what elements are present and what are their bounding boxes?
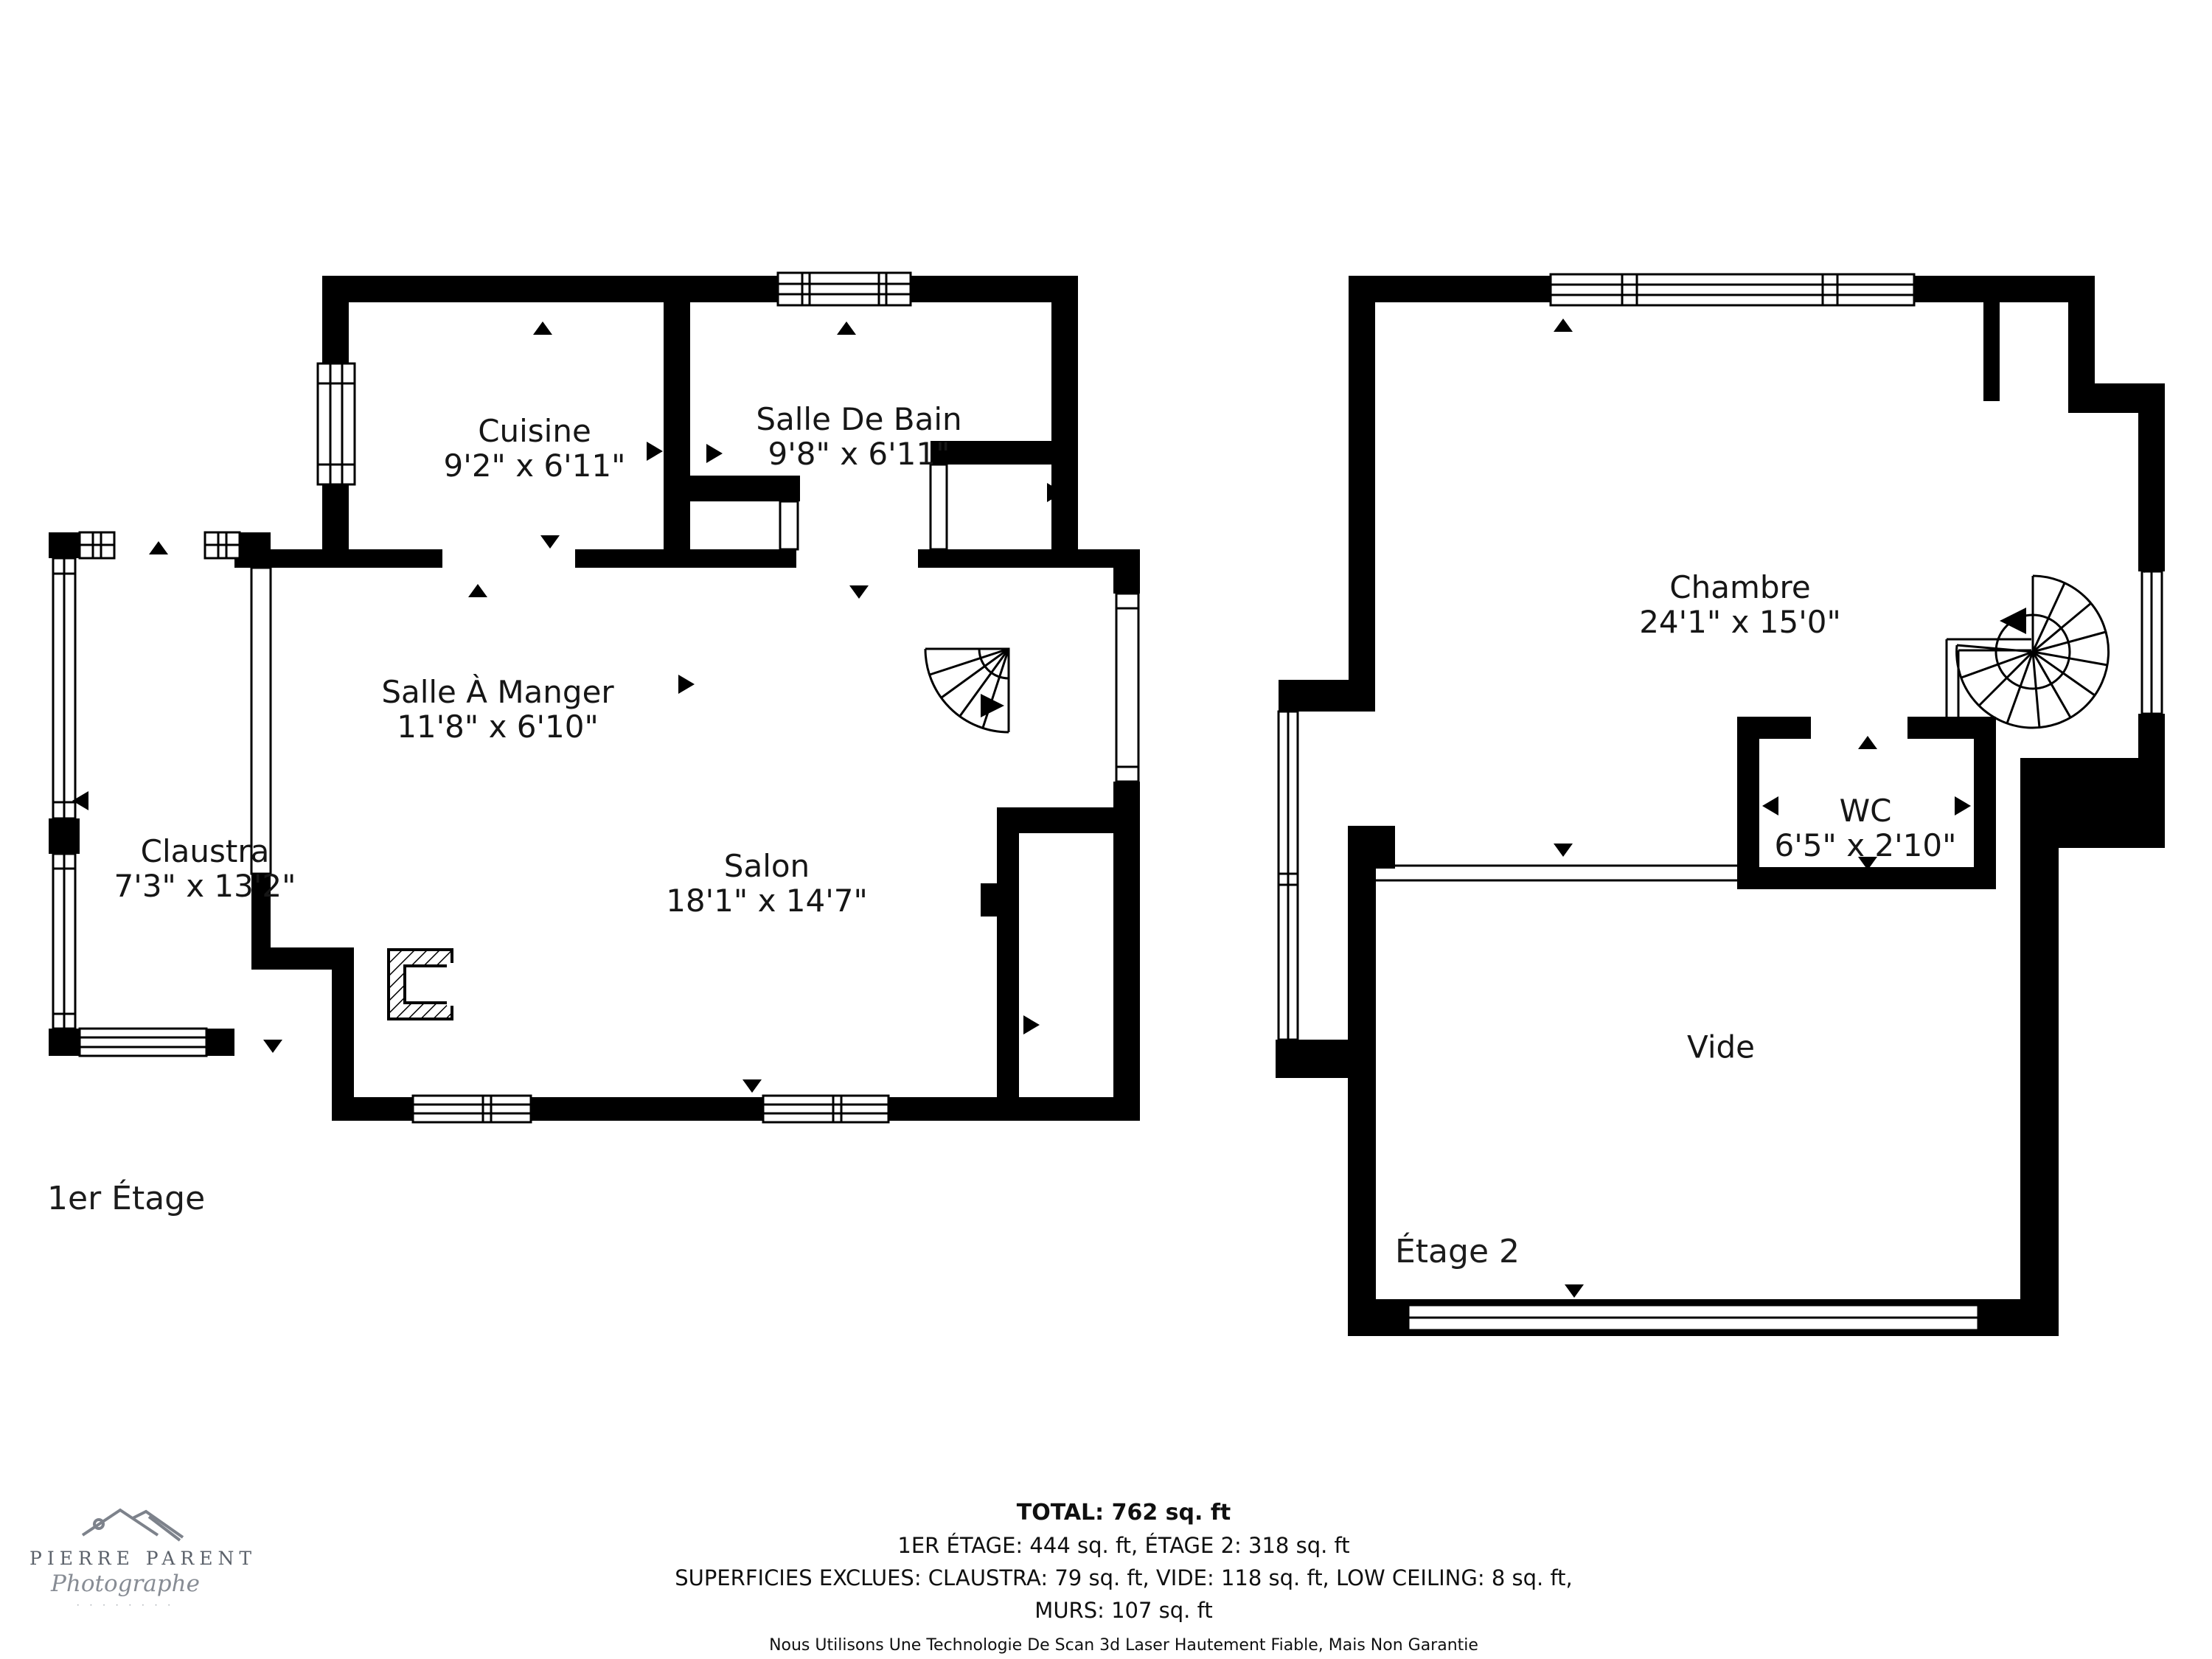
room-label-claustra: Claustra 7'3" x 13'2" — [114, 834, 296, 903]
floor1-label: 1er Étage — [47, 1180, 205, 1217]
logo-subtitle: Photographe — [29, 1571, 221, 1597]
room-name: Claustra — [114, 834, 296, 869]
room-label-salle-de-bain: Salle De Bain 9'8" x 6'11" — [756, 402, 961, 471]
room-dims: 6'5" x 2'10" — [1775, 828, 1957, 863]
photographer-logo: PIERRE PARENT Photographe · · · · · · · … — [29, 1500, 221, 1610]
summary-walls: MURS: 107 sq. ft — [18, 1594, 2212, 1627]
room-name: Cuisine — [444, 414, 626, 448]
room-name: Chambre — [1639, 570, 1841, 605]
floor2-label: Étage 2 — [1395, 1233, 1520, 1270]
room-name: Salle À Manger — [381, 675, 613, 709]
room-dims: 9'8" x 6'11" — [756, 437, 961, 471]
room-dims: 24'1" x 15'0" — [1639, 605, 1841, 639]
room-label-vide: Vide — [1687, 1030, 1755, 1065]
room-dims: 9'2" x 6'11" — [444, 448, 626, 483]
summary-floors: 1ER ÉTAGE: 444 sq. ft, ÉTAGE 2: 318 sq. … — [18, 1529, 2212, 1562]
room-label-salle-a-manger: Salle À Manger 11'8" x 6'10" — [381, 675, 613, 744]
spiral-staircase-floor1 — [925, 649, 1009, 732]
logo-tagline: · · · · · · · · — [29, 1600, 221, 1610]
fireplace — [389, 950, 456, 1019]
room-label-salon: Salon 18'1" x 14'7" — [666, 849, 868, 918]
summary-exclusions: SUPERFICIES EXCLUES: CLAUSTRA: 79 sq. ft… — [18, 1562, 2212, 1594]
room-label-chambre: Chambre 24'1" x 15'0" — [1639, 570, 1841, 639]
room-name: Vide — [1687, 1030, 1755, 1065]
room-label-wc: WC 6'5" x 2'10" — [1775, 793, 1957, 863]
room-dims: 11'8" x 6'10" — [381, 709, 613, 744]
vide-railing — [1376, 866, 1737, 880]
area-summary: TOTAL: 762 sq. ft 1ER ÉTAGE: 444 sq. ft,… — [18, 1497, 2212, 1659]
floor2-walls — [1276, 276, 2165, 1336]
room-dims: 18'1" x 14'7" — [666, 883, 868, 918]
room-label-cuisine: Cuisine 9'2" x 6'11" — [444, 414, 626, 483]
room-name: WC — [1775, 793, 1957, 828]
summary-total: TOTAL: 762 sq. ft — [18, 1497, 2212, 1529]
room-name: Salle De Bain — [756, 402, 961, 437]
logo-name: PIERRE PARENT — [29, 1548, 221, 1569]
room-dims: 7'3" x 13'2" — [114, 869, 296, 903]
disclaimer: Nous Utilisons Une Technologie De Scan 3… — [18, 1632, 2212, 1659]
floorplan-page: Cuisine 9'2" x 6'11" Salle De Bain 9'8" … — [0, 0, 2212, 1659]
spiral-staircase-floor2 — [1947, 576, 2109, 728]
room-name: Salon — [666, 849, 868, 883]
